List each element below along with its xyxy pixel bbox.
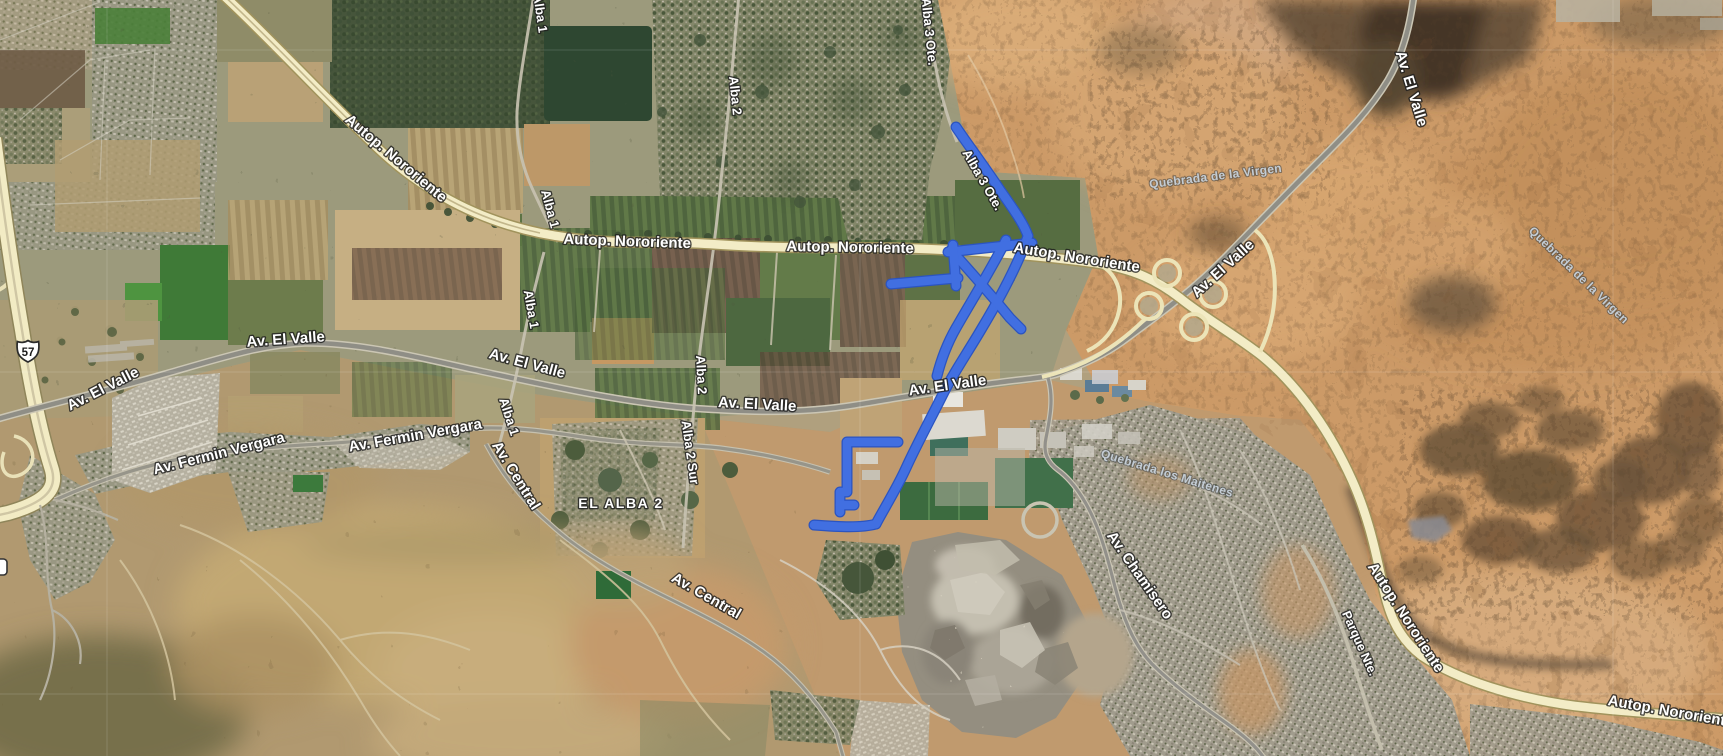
svg-text:Autop. Nororiente: Autop. Nororiente: [786, 238, 914, 257]
svg-text:Alba 2: Alba 2: [693, 355, 710, 395]
svg-text:57: 57: [22, 347, 35, 359]
svg-text:EL ALBA 2: EL ALBA 2: [578, 495, 663, 511]
